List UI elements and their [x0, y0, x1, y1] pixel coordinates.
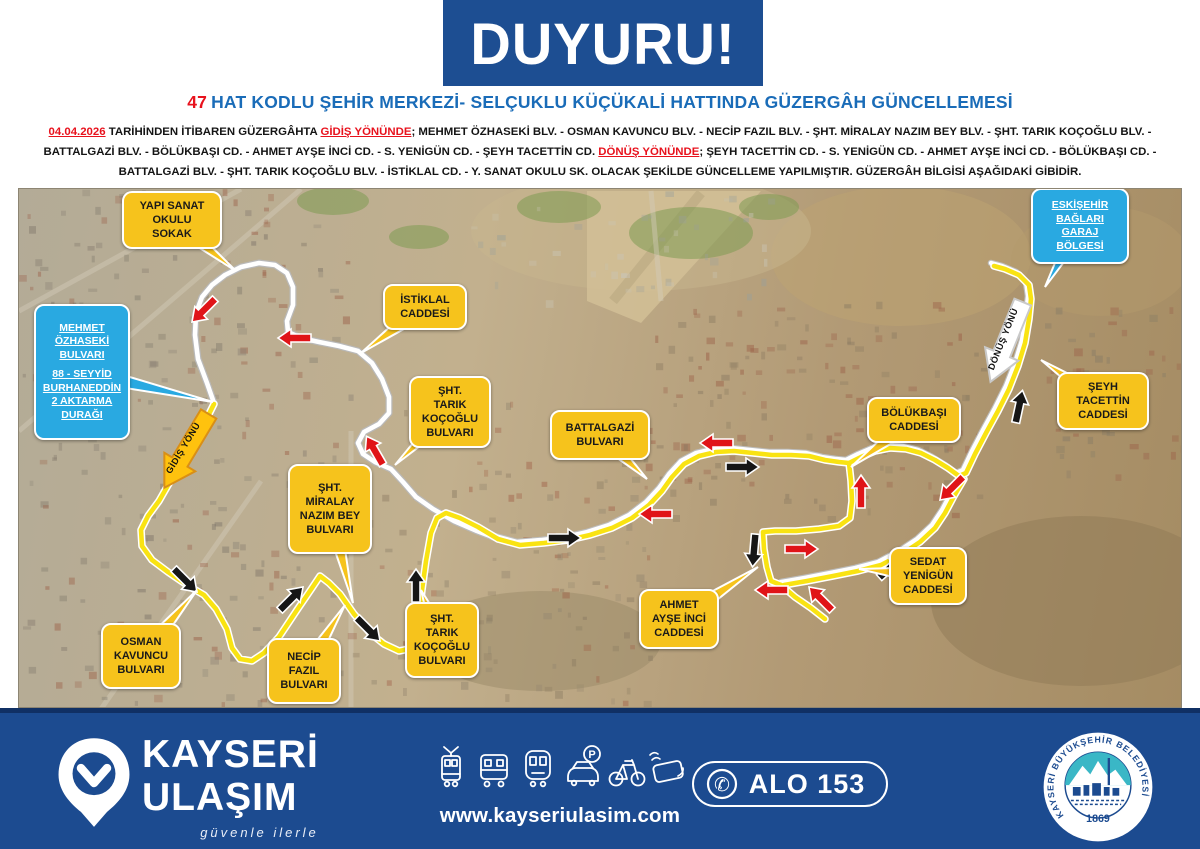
bus-icon	[481, 755, 507, 787]
ahmet-ayse-inci-caddesi-label: AHMETAYŞE İNCİCADDESİ	[639, 589, 719, 649]
footer: KAYSERİ ULAŞIM güvenle ilerle	[0, 708, 1200, 849]
label-line: BULVARI	[306, 523, 353, 537]
announcement-poster: DUYURU! 47HAT KODLU ŞEHİR MERKEZİ- SELÇU…	[0, 0, 1200, 849]
phone-number-label: ALO 153	[740, 769, 886, 800]
label-line: MEHMET	[59, 322, 105, 336]
label-line: ŞHT.	[318, 481, 342, 495]
sht-miralay-nazim-bey-bulvari-label: ŞHT.MİRALAYNAZIM BEYBULVARI	[288, 464, 372, 554]
tram-icon	[442, 747, 460, 786]
label-line: ŞHT.	[430, 612, 454, 626]
label-line: AYŞE İNCİ	[652, 612, 706, 626]
alo-153-badge: ✆ ALO 153	[692, 761, 888, 807]
mehmet-ozhaseki-transfer-label: MEHMETÖZHASEKİBULVARI88 - SEYYİDBURHANED…	[34, 304, 130, 440]
announcement-text-segment: ; ŞEYH TACETTİN CD. - S. YENİGÜN CD. - A…	[699, 146, 1156, 158]
label-line: CADDESİ	[889, 420, 939, 434]
car-parking-icon: P	[568, 746, 600, 785]
announcement-text-segment: 04.04.2026	[49, 126, 106, 138]
brand-wordmark: KAYSERİ ULAŞIM güvenle ilerle	[142, 735, 319, 839]
brand-tagline: güvenle ilerle	[142, 826, 319, 839]
banner-text: DUYURU!	[470, 9, 735, 77]
route-map: GİDİŞ YÖNÜDÖNÜŞ YÖNÜ YAPI SANATOKULUSOKA…	[18, 188, 1182, 708]
necip-fazil-bulvari-label: NECİPFAZILBULVARI	[267, 638, 341, 704]
label-line: KAVUNCU	[114, 649, 168, 663]
label-line: KOÇOĞLU	[422, 412, 478, 426]
announcement-text-segment: ; MEHMET ÖZHASEKİ BLV. - OSMAN KAVUNCU B…	[411, 126, 1151, 138]
label-line: BULVARI	[59, 349, 104, 363]
osman-kavuncu-bulvari-label: OSMANKAVUNCUBULVARI	[101, 623, 181, 689]
label-line: CADDESİ	[1078, 408, 1128, 422]
announcement-text-segment: DÖNÜŞ YÖNÜNDE	[598, 146, 699, 158]
label-line: BURHANEDDİN	[43, 382, 121, 396]
map-label-layer: YAPI SANATOKULUSOKAKİSTİKLALCADDESİŞHT.T…	[19, 189, 1181, 707]
metro-icon	[526, 751, 550, 786]
label-line: GARAJ	[1062, 226, 1099, 240]
sedat-yenigun-caddesi-label: SEDATYENİGÜNCADDESİ	[889, 547, 967, 605]
phone-icon: ✆	[704, 766, 740, 802]
label-line: CADDESİ	[903, 583, 953, 597]
label-line: 2 AKTARMA	[52, 395, 113, 409]
label-line: TACETTİN	[1076, 394, 1130, 408]
website-link[interactable]: www.kayseriulasim.com	[430, 804, 690, 828]
announcement-text-segment: TARİHİNDEN İTİBAREN GÜZERGÂHTA	[106, 126, 321, 138]
label-line: BULVARI	[280, 678, 327, 692]
label-line: SOKAK	[152, 227, 192, 241]
label-line: NECİP	[287, 650, 321, 664]
title-text: HAT KODLU ŞEHİR MERKEZİ- SELÇUKLU KÜÇÜKA…	[211, 92, 1013, 112]
sht-tarik-kocoglu-bulvari-2-label: ŞHT.TARIKKOÇOĞLUBULVARI	[405, 602, 479, 678]
label-line: ŞHT.	[438, 384, 462, 398]
bicycle-icon	[610, 760, 645, 786]
label-line: CADDESİ	[400, 307, 450, 321]
istiklal-caddesi-label: İSTİKLALCADDESİ	[383, 284, 467, 330]
label-line: BULVARI	[117, 663, 164, 677]
label-line: BULVARI	[418, 654, 465, 668]
label-line: SEDAT	[910, 555, 946, 569]
sht-tarik-kocoglu-bulvari-1-label: ŞHT.TARIKKOÇOĞLUBULVARI	[409, 376, 491, 448]
label-line: OKULU	[152, 213, 191, 227]
label-line: BULVARI	[576, 435, 623, 449]
brand-line-2: ULAŞIM	[142, 778, 319, 817]
label-line: İSTİKLAL	[400, 293, 450, 307]
svg-text:P: P	[588, 749, 595, 761]
label-line: NAZIM BEY	[300, 509, 361, 523]
announcement-text-segment: BATTALGAZİ BLV. - ŞHT. TARIK KOÇOĞLU BLV…	[119, 166, 1082, 178]
label-line: MİRALAY	[305, 495, 354, 509]
seyh-tacettin-caddesi-label: ŞEYHTACETTİNCADDESİ	[1057, 372, 1149, 430]
label-line: YAPI SANAT	[140, 199, 205, 213]
announcement-banner: DUYURU!	[443, 0, 763, 86]
label-line: ŞEYH	[1088, 380, 1118, 394]
label-line: KOÇOĞLU	[414, 640, 470, 654]
brand-line-1: KAYSERİ	[142, 735, 319, 774]
label-line: ESKİŞEHİR	[1052, 199, 1109, 213]
label-line: BÖLGESİ	[1056, 240, 1103, 254]
label-line: DURAĞI	[61, 409, 102, 423]
page-title: 47HAT KODLU ŞEHİR MERKEZİ- SELÇUKLU KÜÇÜ…	[0, 92, 1200, 113]
transit-icons-row: P	[436, 743, 684, 793]
svg-text:✆: ✆	[714, 774, 730, 796]
label-line: 88 - SEYYİD	[52, 368, 112, 382]
bolukbasi-caddesi-label: BÖLÜKBAŞICADDESİ	[867, 397, 961, 443]
yapi-sanat-okulu-sokak-label: YAPI SANATOKULUSOKAK	[122, 191, 222, 249]
footer-center: P www.kayseriulasim.com	[430, 743, 690, 828]
announcement-text: 04.04.2026 TARİHİNDEN İTİBAREN GÜZERGÂHT…	[28, 122, 1172, 182]
label-line: TARIK	[426, 626, 459, 640]
label-line: TARIK	[434, 398, 467, 412]
battalgazi-bulvari-label: BATTALGAZİBULVARI	[550, 410, 650, 460]
label-line: OSMAN	[121, 635, 162, 649]
kayseri-ulasim-pin-logo	[52, 733, 136, 833]
eskisehir-baglari-garaj-label: ESKİŞEHİRBAĞLARIGARAJBÖLGESİ	[1031, 188, 1129, 264]
label-line: FAZIL	[289, 664, 320, 678]
contactless-card-icon	[650, 753, 684, 783]
announcement-text-segment: BATTALGAZİ BLV. - BÖLÜKBAŞI CD. - AHMET …	[44, 146, 599, 158]
label-line: BATTALGAZİ	[566, 421, 635, 435]
label-line: AHMET	[659, 598, 698, 612]
label-line: ÖZHASEKİ	[55, 335, 109, 349]
label-line: BULVARI	[426, 426, 473, 440]
label-line: CADDESİ	[654, 626, 704, 640]
seal-year: 1869	[1086, 813, 1110, 825]
kayseri-municipality-seal: KAYSERİ BÜYÜKŞEHİR BELEDİYESİ 1869	[1040, 729, 1156, 845]
label-line: BAĞLARI	[1056, 213, 1104, 227]
label-line: YENİGÜN	[903, 569, 953, 583]
announcement-text-segment: GİDİŞ YÖNÜNDE	[321, 126, 412, 138]
label-line: BÖLÜKBAŞI	[881, 406, 946, 420]
route-number: 47	[187, 92, 207, 112]
